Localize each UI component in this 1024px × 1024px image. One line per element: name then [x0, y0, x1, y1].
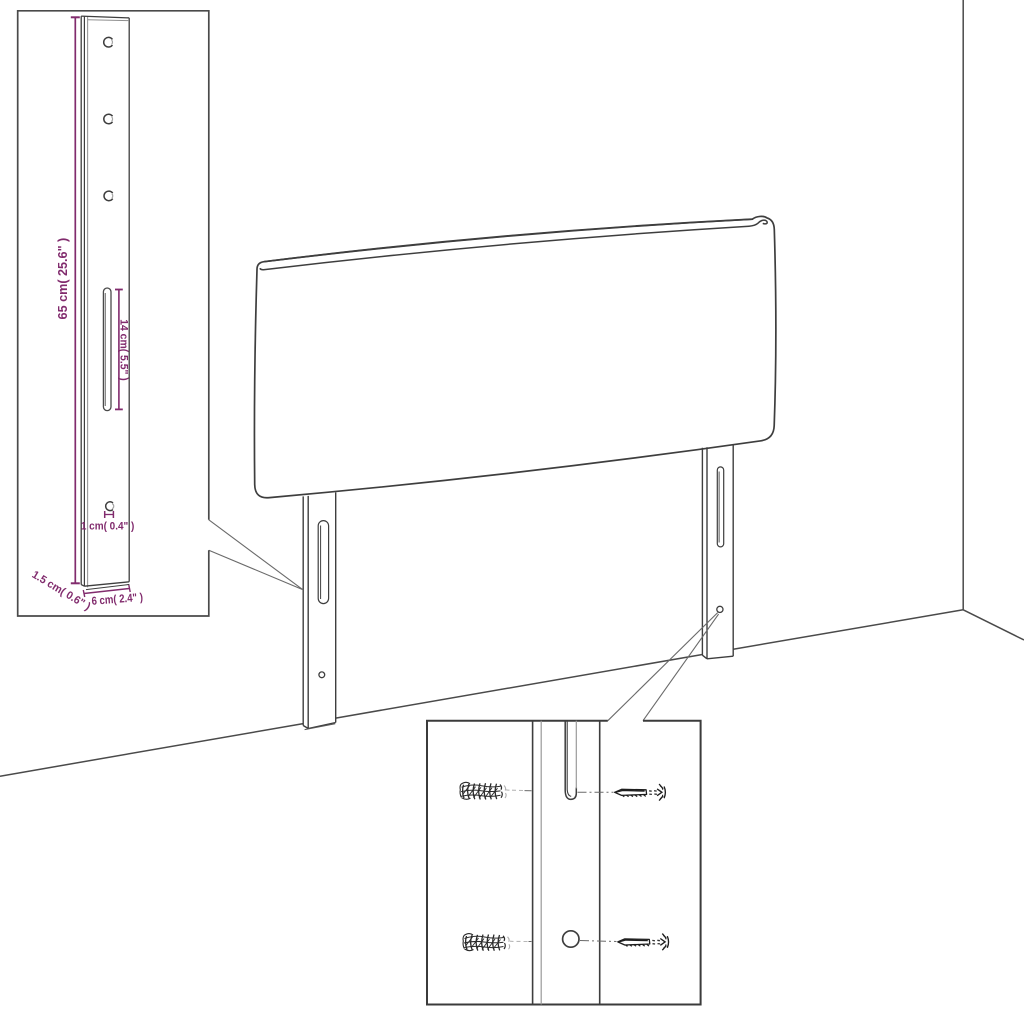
svg-text:6 cm( 2.4" ): 6 cm( 2.4" ) — [91, 592, 143, 608]
svg-text:1 cm( 0.4" ): 1 cm( 0.4" ) — [81, 521, 135, 533]
svg-text:14 cm( 5.5" ): 14 cm( 5.5" ) — [118, 319, 130, 381]
svg-text:65 cm( 25.6" ): 65 cm( 25.6" ) — [55, 238, 70, 320]
